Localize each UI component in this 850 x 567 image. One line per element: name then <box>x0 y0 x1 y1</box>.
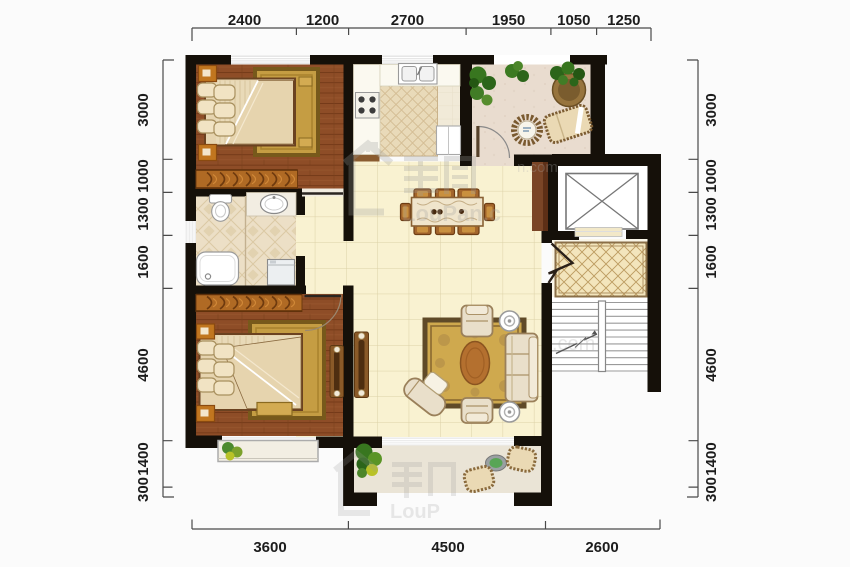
svg-text:2600: 2600 <box>585 539 618 556</box>
svg-text:1000: 1000 <box>135 159 152 192</box>
svg-text:2400: 2400 <box>228 12 261 29</box>
svg-text:1400: 1400 <box>703 442 720 475</box>
svg-text:1050: 1050 <box>557 12 590 29</box>
svg-text:3600: 3600 <box>253 539 286 556</box>
svg-text:n.com: n.com <box>517 159 558 176</box>
svg-text:1300: 1300 <box>135 197 152 230</box>
svg-text:300: 300 <box>135 477 152 502</box>
svg-text:1600: 1600 <box>135 245 152 278</box>
svg-text:1950: 1950 <box>492 12 525 29</box>
svg-text:300: 300 <box>703 477 720 502</box>
svg-text:1300: 1300 <box>703 197 720 230</box>
svg-text:1000: 1000 <box>703 159 720 192</box>
svg-text:LouP: LouP <box>390 501 440 523</box>
svg-text:1200: 1200 <box>306 12 339 29</box>
svg-text:3000: 3000 <box>135 93 152 126</box>
svg-text:1400: 1400 <box>135 442 152 475</box>
svg-text:4500: 4500 <box>431 539 464 556</box>
svg-text:LouPan.c: LouPan.c <box>402 201 501 226</box>
svg-text:2700: 2700 <box>391 12 424 29</box>
svg-text:.com: .com <box>552 333 595 355</box>
svg-text:1600: 1600 <box>703 245 720 278</box>
svg-text:4600: 4600 <box>703 348 720 381</box>
svg-text:1250: 1250 <box>607 12 640 29</box>
svg-text:4600: 4600 <box>135 348 152 381</box>
svg-text:3000: 3000 <box>703 93 720 126</box>
